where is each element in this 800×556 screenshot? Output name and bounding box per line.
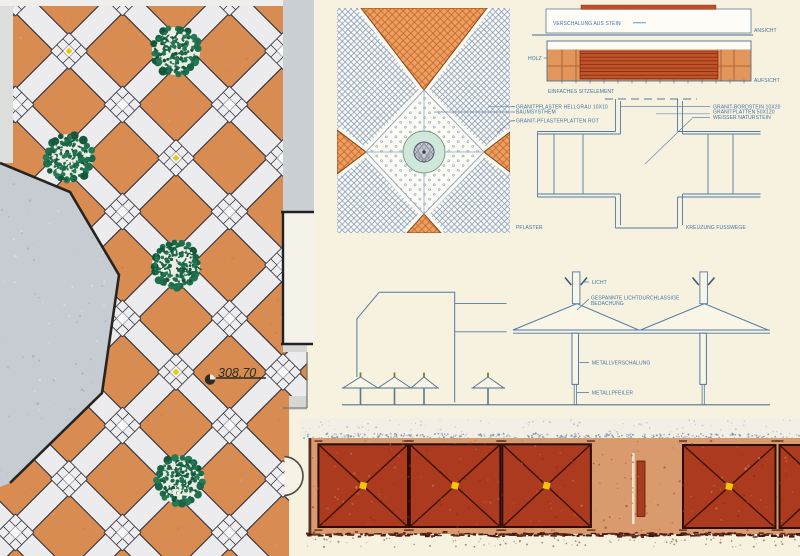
svg-text:KREUZUNG FUSSWEGE: KREUZUNG FUSSWEGE bbox=[686, 225, 746, 231]
svg-text:BAUMSYSTHEM: BAUMSYSTHEM bbox=[516, 110, 556, 116]
svg-text:GRANIT-PFLASTERPLATTEN ROT: GRANIT-PFLASTERPLATTEN ROT bbox=[516, 119, 599, 125]
svg-text:ANSICHT: ANSICHT bbox=[754, 28, 777, 34]
svg-text:HOLZ: HOLZ bbox=[528, 56, 542, 62]
svg-text:AUFSICHT: AUFSICHT bbox=[754, 78, 780, 84]
svg-text:LICHT: LICHT bbox=[592, 280, 607, 286]
svg-text:METALLPFEILER: METALLPFEILER bbox=[592, 391, 634, 397]
svg-text:BEDACHUNG: BEDACHUNG bbox=[591, 301, 624, 307]
svg-text:EINFACHES SITZELEMENT: EINFACHES SITZELEMENT bbox=[548, 89, 614, 95]
svg-text:WEISSER NATURSTEIN: WEISSER NATURSTEIN bbox=[713, 115, 771, 121]
svg-text:VERSCHALUNG AUS STEIN: VERSCHALUNG AUS STEIN bbox=[553, 21, 621, 27]
svg-text:PFLASTER: PFLASTER bbox=[516, 225, 543, 231]
svg-text:METALLVERSCHALUNG: METALLVERSCHALUNG bbox=[592, 361, 650, 367]
